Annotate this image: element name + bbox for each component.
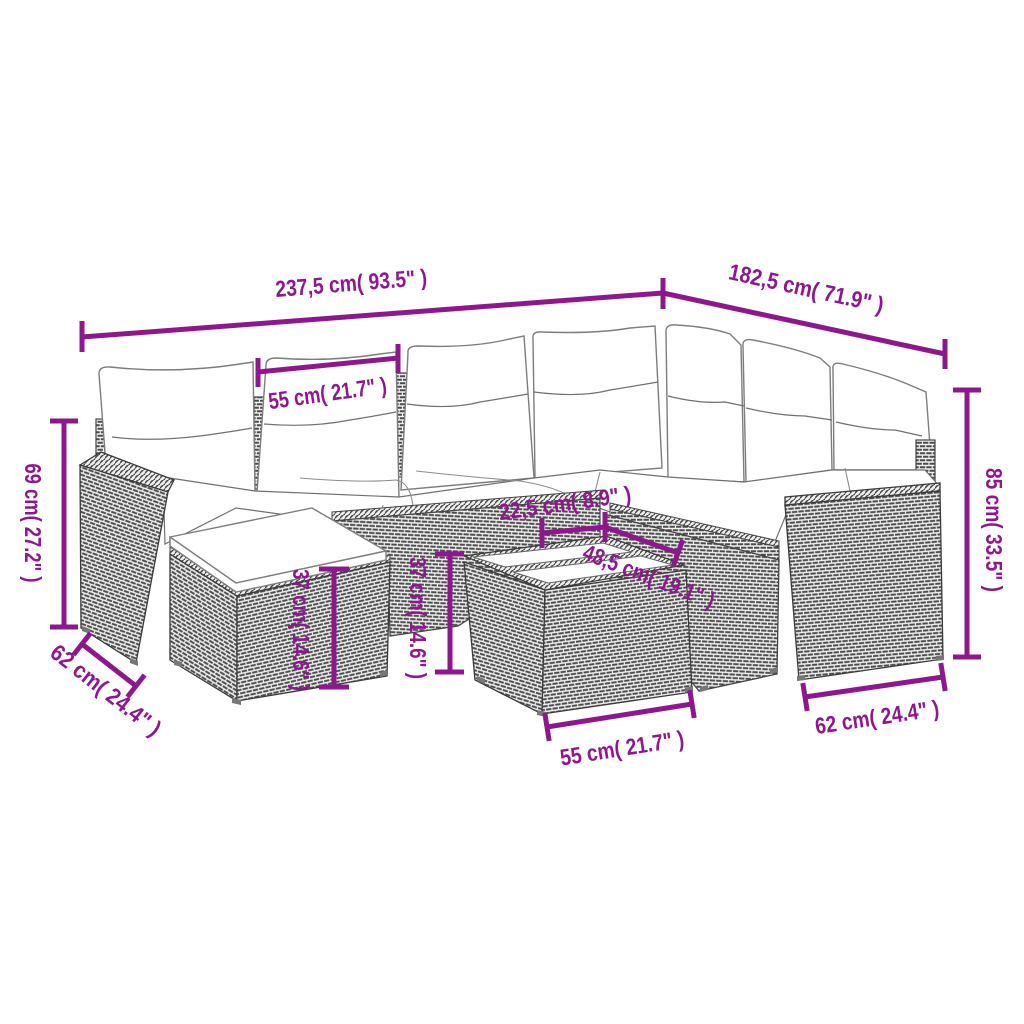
svg-text:85 cm( 33.5" ): 85 cm( 33.5" ) — [981, 468, 1007, 592]
svg-text:69 cm( 27.2" ): 69 cm( 27.2" ) — [20, 464, 46, 583]
svg-text:37 cm( 14.6" ): 37 cm( 14.6" ) — [288, 569, 314, 691]
svg-text:37 cm( 14.6" ): 37 cm( 14.6" ) — [405, 557, 431, 679]
